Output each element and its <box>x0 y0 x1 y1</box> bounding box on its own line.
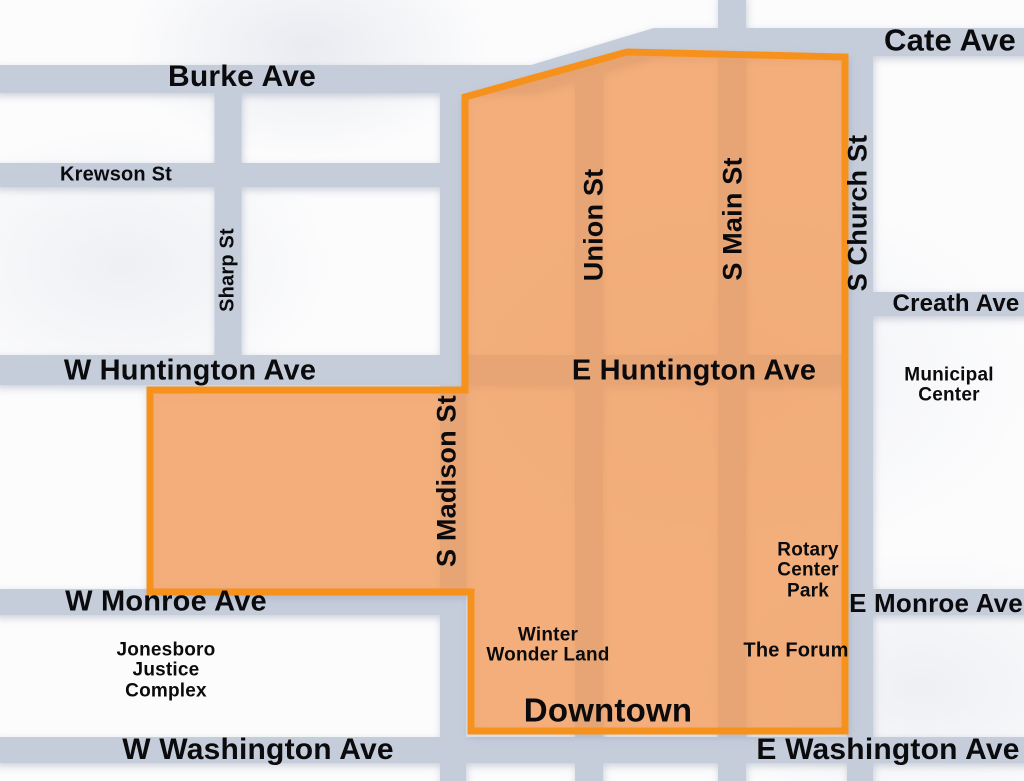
map-canvas[interactable]: Cate Ave Burke Ave Krewson St Sharp St U… <box>0 0 1024 781</box>
downtown-highlight-region <box>150 52 845 731</box>
street-network-layer <box>0 0 1024 781</box>
